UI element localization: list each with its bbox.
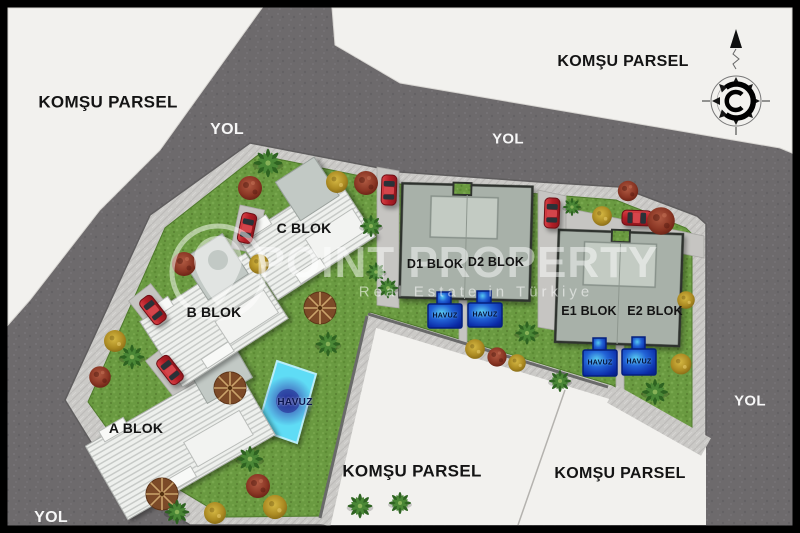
car [381, 175, 397, 206]
label-pool-d2: HAVUZ [472, 312, 497, 319]
label-road-bottom-left: YOL [34, 510, 68, 526]
label-block-c: C BLOK [277, 221, 332, 235]
label-road-top-left: YOL [210, 122, 244, 138]
label-parcel-bottom-left: KOMŞU PARSEL [342, 463, 481, 480]
label-parcel-top-right: KOMŞU PARSEL [557, 54, 688, 70]
label-block-d1: D1 BLOK [407, 258, 463, 271]
label-parcel-top-left: KOMŞU PARSEL [38, 94, 177, 111]
label-road-right: YOL [734, 394, 766, 409]
car [544, 198, 560, 229]
label-block-e1: E1 BLOK [561, 305, 617, 318]
label-block-e2: E2 BLOK [627, 305, 683, 318]
label-block-d2: D2 BLOK [468, 256, 524, 269]
label-pool-e2: HAVUZ [626, 359, 651, 366]
label-pool-e1: HAVUZ [587, 360, 612, 367]
watermark-subtitle: Real Estate in Türkiye [359, 284, 593, 301]
label-pool-main: HAVUZ [277, 398, 312, 408]
label-pool-d1: HAVUZ [432, 313, 457, 320]
label-parcel-bottom-right: KOMŞU PARSEL [554, 466, 685, 482]
label-block-a: A BLOK [109, 421, 163, 435]
label-block-b: B BLOK [187, 305, 242, 319]
label-road-top: YOL [492, 132, 524, 147]
site-plan: POINT PROPERTY Real Estate in Türkiye KO… [0, 0, 800, 533]
